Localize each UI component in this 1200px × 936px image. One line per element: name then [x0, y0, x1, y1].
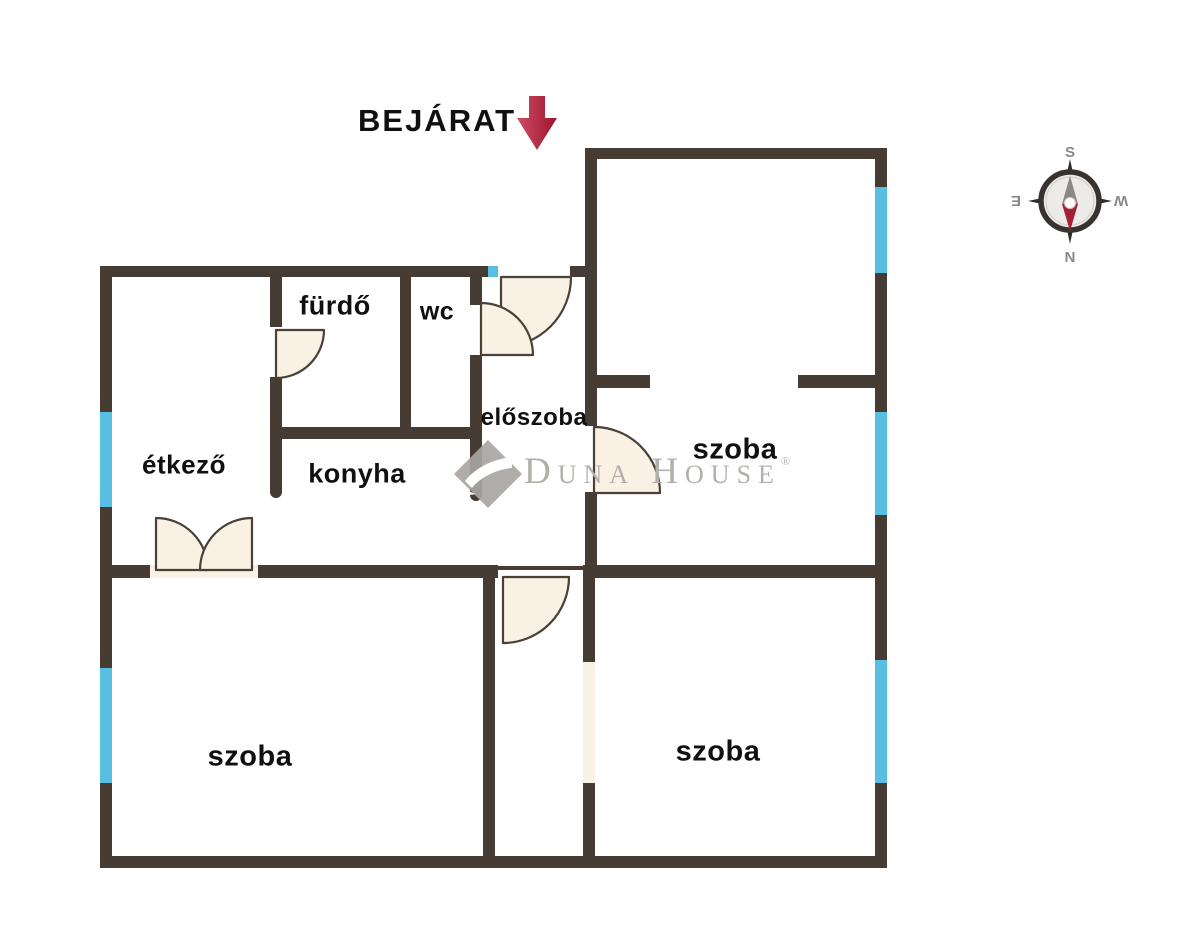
compass-star-vertical — [1061, 159, 1079, 244]
room-label-kitchen: konyha — [308, 459, 406, 490]
wall-divider-c — [583, 565, 887, 578]
wall-bottom — [100, 856, 887, 868]
wall-bottom-rooms-b — [583, 783, 595, 856]
wall-bathroom-wc-divider — [400, 277, 411, 432]
wall-right-3 — [875, 515, 887, 660]
entrance-label: BEJÁRAT — [358, 103, 516, 139]
wall-opening-bottom-rooms — [583, 662, 595, 783]
balcony-double-door — [156, 518, 252, 570]
wall-divider-b — [258, 565, 498, 578]
room-label-bathroom: fürdő — [299, 291, 370, 322]
window-right-middle — [875, 412, 887, 515]
balcony-door-threshold — [150, 565, 258, 578]
compass-dial — [1041, 172, 1099, 230]
registered-mark: ® — [781, 454, 790, 468]
wall-left-2 — [100, 507, 112, 668]
floor-plan-canvas: BEJÁRAT — [0, 0, 1200, 936]
wall-right-1 — [875, 148, 887, 187]
wc-door — [481, 303, 533, 355]
wall-strip-left — [483, 577, 495, 856]
room-label-room-top-right: szoba — [693, 434, 778, 467]
compass-letter-s: S — [1065, 144, 1075, 161]
compass-letter-n: N — [1065, 248, 1076, 265]
wall-right-2 — [875, 273, 887, 412]
compass-needle-south-end — [1062, 176, 1078, 204]
wall-divider-a — [100, 565, 150, 578]
door-lintel-line — [498, 566, 583, 570]
wall-left-1 — [100, 266, 112, 412]
wall-bottom-rooms-a — [583, 565, 595, 662]
room-label-room-bottom-right: szoba — [676, 736, 761, 769]
window-left-dining — [100, 412, 112, 507]
wall-wc-right-a — [470, 277, 482, 305]
room-label-toilet: wc — [420, 298, 454, 327]
wall-top-left-a — [100, 266, 488, 277]
window-right-top — [875, 187, 887, 273]
room-label-dining: étkező — [142, 450, 226, 481]
window-right-bottom — [875, 660, 887, 783]
window-left-room — [100, 668, 112, 783]
wall-stub-room-left — [585, 375, 650, 388]
entrance-door — [501, 277, 571, 347]
compass-hub — [1065, 198, 1076, 209]
entrance-arrow-icon — [517, 96, 557, 150]
compass-needle-north-end — [1062, 204, 1078, 231]
wall-top-right — [585, 148, 887, 159]
window-top-sidelight — [488, 266, 498, 277]
wall-bathroom-left-a — [270, 277, 282, 327]
wall-stub-room-right — [798, 375, 887, 388]
compass-star-horizontal — [1028, 192, 1112, 210]
compass-rose: S N E W — [1011, 144, 1128, 265]
duna-house-logo-icon — [452, 438, 524, 510]
room-label-hallway: előszoba — [481, 404, 588, 432]
compass-letter-e: E — [1011, 192, 1021, 209]
wall-kitchen-top — [270, 427, 482, 439]
compass-letter-w: W — [1113, 192, 1128, 209]
room-label-room-bottom-left: szoba — [208, 741, 293, 774]
strip-door — [503, 577, 569, 643]
bathroom-door — [276, 330, 324, 378]
